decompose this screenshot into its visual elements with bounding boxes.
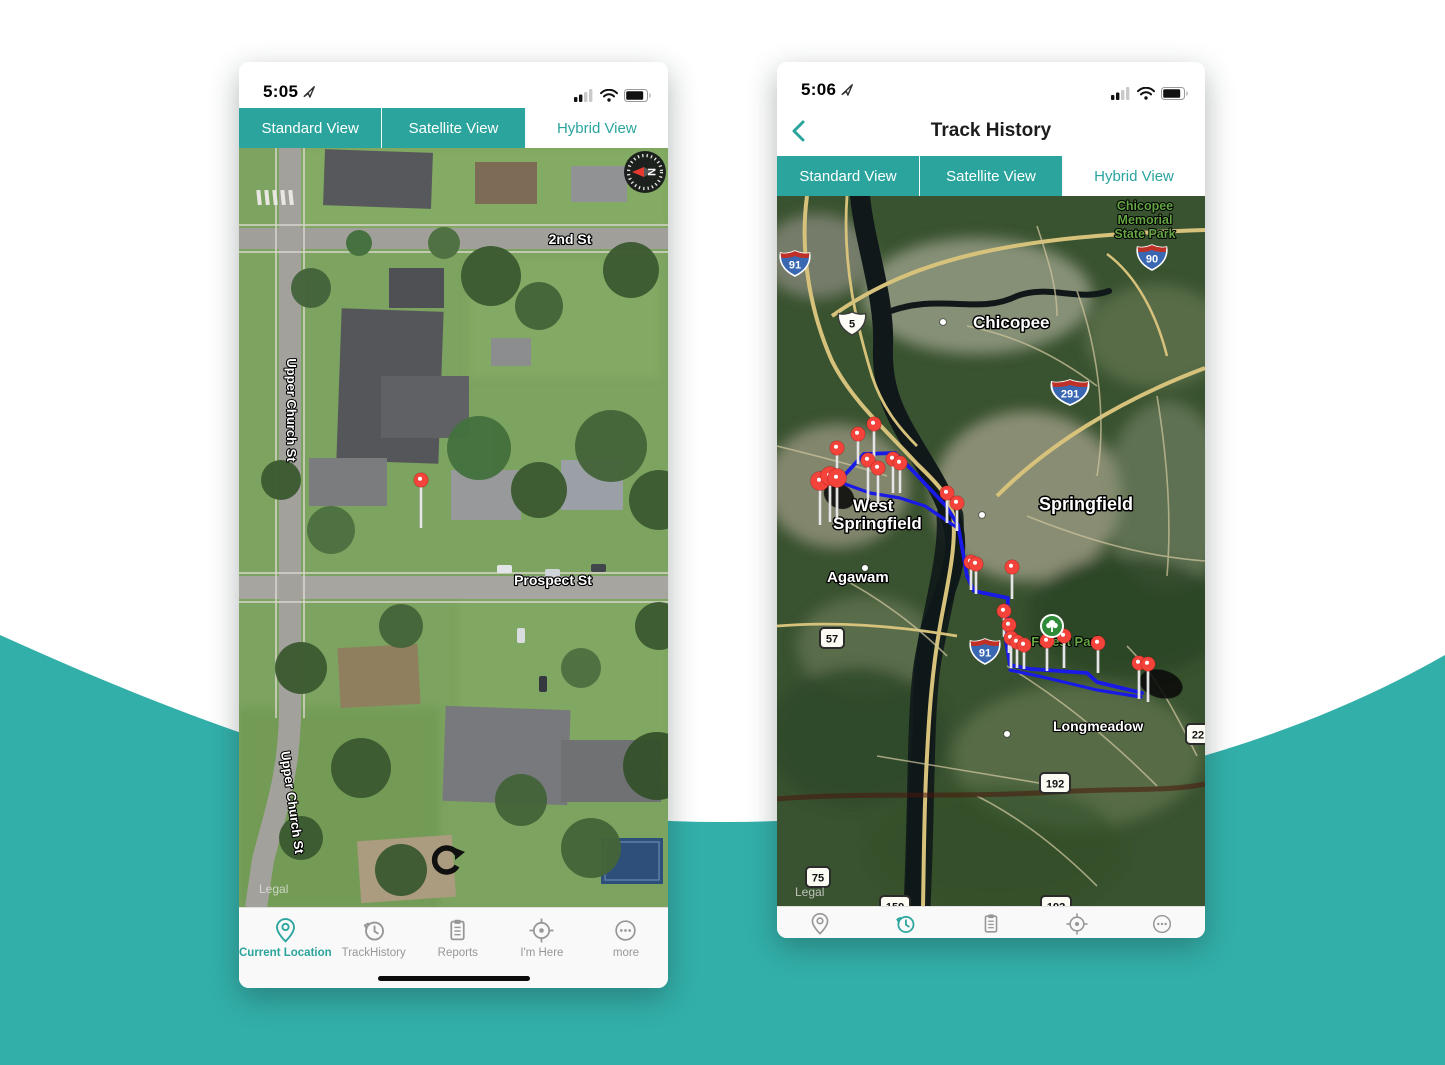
city-label: Springfield: [833, 514, 922, 533]
svg-text:57: 57: [826, 634, 838, 646]
city-dot: [940, 319, 947, 326]
phone-right: 5:06: [777, 62, 1205, 938]
status-icons-right: [1111, 87, 1189, 100]
city-dot: [979, 512, 986, 519]
satellite-map-right[interactable]: ChicopeeMemorialState ParkChicopeeSpring…: [777, 196, 1205, 906]
compass-control[interactable]: N: [624, 151, 666, 193]
city-label: West: [853, 496, 894, 515]
legal-link[interactable]: Legal: [795, 885, 824, 899]
tab-label: Standard View: [799, 168, 896, 185]
wifi-icon: [600, 89, 618, 102]
page-title: Track History: [931, 120, 1051, 142]
nav-label: more: [613, 947, 639, 959]
svg-text:192: 192: [1046, 779, 1064, 791]
back-button[interactable]: [789, 118, 811, 144]
status-bar-left: 5:05: [239, 62, 668, 108]
svg-text:5: 5: [849, 319, 855, 331]
svg-text:90: 90: [1146, 254, 1158, 266]
compass-north-label: N: [645, 168, 657, 176]
svg-text:22: 22: [1192, 730, 1204, 742]
location-arrow-icon: [302, 85, 316, 99]
tab-standard-view[interactable]: Standard View: [239, 108, 382, 148]
city-label: Chicopee: [973, 313, 1050, 332]
map-view-tabs-left: Standard View Satellite View Hybrid View: [239, 108, 668, 148]
nav-track-history[interactable]: [863, 907, 949, 938]
more-icon: [1150, 912, 1174, 936]
satellite-map-left[interactable]: 2nd StUpper Church StProspect StUpper Ch…: [239, 148, 668, 907]
tab-hybrid-view[interactable]: Hybrid View: [526, 108, 668, 148]
nav-label: Reports: [438, 947, 478, 959]
bottom-nav-left: Current Location TrackHistory Reports: [239, 907, 668, 988]
reports-icon: [444, 917, 471, 944]
park-label: Chicopee: [1117, 199, 1173, 213]
route-shield-192: 192: [1041, 896, 1071, 906]
street-label: Prospect St: [514, 572, 592, 588]
wifi-icon: [1137, 87, 1155, 100]
park-tree-pin[interactable]: [1041, 615, 1063, 637]
legal-link[interactable]: Legal: [259, 882, 288, 896]
nav-more[interactable]: [1119, 907, 1205, 938]
route-shield-159: 159: [880, 896, 910, 906]
battery-icon: [1161, 87, 1189, 100]
nav-im-here[interactable]: [1034, 907, 1120, 938]
svg-text:159: 159: [886, 902, 904, 907]
reports-icon: [979, 912, 1003, 936]
city-label: Springfield: [1039, 494, 1133, 514]
svg-text:75: 75: [812, 873, 824, 885]
nav-label: I'm Here: [520, 947, 563, 959]
cellular-signal-icon: [1111, 87, 1131, 100]
status-bar-right: 5:06: [777, 62, 1205, 106]
city-label: Longmeadow: [1053, 718, 1143, 734]
street-label: 2nd St: [549, 231, 592, 247]
history-icon: [893, 912, 917, 936]
street-label: Upper Church St: [284, 358, 299, 462]
tab-label: Hybrid View: [557, 120, 637, 137]
home-indicator[interactable]: [378, 976, 530, 981]
tab-satellite-view[interactable]: Satellite View: [382, 108, 525, 148]
svg-text:91: 91: [789, 260, 801, 272]
location-pin-icon: [808, 912, 832, 936]
nav-label: Current Location: [239, 947, 332, 959]
park-label: State Park: [1114, 227, 1175, 241]
cellular-signal-icon: [574, 89, 594, 102]
svg-text:291: 291: [1061, 389, 1079, 401]
nav-more[interactable]: more: [584, 908, 668, 988]
background-swoosh: [0, 0, 1445, 1065]
target-icon: [528, 917, 555, 944]
city-label: Agawam: [827, 569, 889, 586]
location-arrow-icon: [840, 83, 854, 97]
nav-label: TrackHistory: [342, 947, 406, 959]
park-label: Memorial: [1118, 213, 1173, 227]
time-text: 5:05: [263, 82, 298, 102]
time-text: 5:06: [801, 80, 836, 100]
tab-label: Hybrid View: [1094, 168, 1174, 185]
target-icon: [1065, 912, 1089, 936]
history-icon: [360, 917, 387, 944]
city-dot: [1004, 731, 1011, 738]
location-pin-icon: [272, 917, 299, 944]
svg-text:192: 192: [1047, 902, 1065, 907]
tab-satellite-view[interactable]: Satellite View: [920, 156, 1063, 196]
svg-text:91: 91: [979, 648, 991, 660]
map-view-tabs-right: Standard View Satellite View Hybrid View: [777, 156, 1205, 196]
status-icons-left: [574, 89, 652, 102]
route-shield-22: 22: [1186, 724, 1205, 744]
status-time-right: 5:06: [801, 80, 854, 100]
route-shield-57: 57: [820, 628, 844, 648]
tab-label: Standard View: [262, 120, 359, 137]
status-time-left: 5:05: [263, 82, 316, 102]
more-icon: [612, 917, 639, 944]
tab-standard-view[interactable]: Standard View: [777, 156, 920, 196]
route-shield-75: 75: [806, 867, 830, 887]
nav-current-location[interactable]: Current Location: [239, 908, 332, 988]
route-shield-192: 192: [1040, 773, 1070, 793]
phone-left: 5:05 Standard View: [239, 62, 668, 988]
tab-label: Satellite View: [409, 120, 499, 137]
nav-current-location[interactable]: [777, 907, 863, 938]
nav-reports[interactable]: [948, 907, 1034, 938]
bottom-nav-right: [777, 906, 1205, 938]
battery-icon: [624, 89, 652, 102]
header: Track History: [777, 106, 1205, 156]
tab-hybrid-view[interactable]: Hybrid View: [1063, 156, 1205, 196]
tab-label: Satellite View: [946, 168, 1036, 185]
back-chevron-icon: [789, 118, 811, 144]
